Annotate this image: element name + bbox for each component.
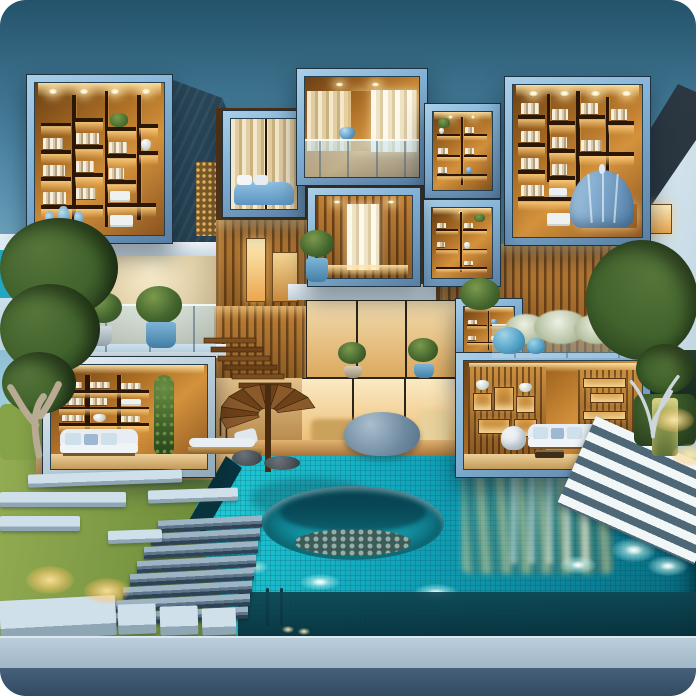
shelf-underglow bbox=[579, 119, 605, 129]
topiary-tree-canopy-right bbox=[586, 240, 696, 360]
box-shelves-upper-mid-interior bbox=[432, 111, 493, 191]
umbrella-seam bbox=[613, 174, 618, 223]
books-row bbox=[437, 223, 447, 229]
bed-pillow bbox=[254, 175, 269, 185]
sofa-pillow bbox=[65, 433, 81, 445]
tree-trunk-right bbox=[620, 360, 696, 460]
shelf-underglow bbox=[518, 174, 545, 184]
shelf-underglow bbox=[107, 131, 135, 141]
box-umbrella-shelves-interior bbox=[512, 84, 643, 238]
concrete-paver bbox=[108, 529, 162, 544]
glass-mullion bbox=[405, 301, 407, 377]
books-row bbox=[468, 320, 477, 325]
sofa-pillow bbox=[84, 434, 98, 446]
ceiling-spotlight bbox=[528, 90, 538, 98]
shelf-underglow bbox=[579, 156, 634, 166]
books-row bbox=[521, 103, 539, 115]
lit-window-a bbox=[246, 238, 266, 302]
bonsai-plant bbox=[300, 230, 334, 257]
books-row bbox=[437, 242, 445, 248]
foreground-dark-band bbox=[0, 668, 696, 696]
display-cube bbox=[473, 393, 493, 410]
box-shelves-upper-mid bbox=[424, 103, 501, 199]
folded-towels bbox=[110, 215, 133, 227]
shelf-underglow bbox=[463, 231, 487, 236]
ceiling-spotlight bbox=[590, 90, 600, 98]
railing-post bbox=[319, 141, 321, 177]
ceiling-spotlight bbox=[335, 82, 344, 87]
sofa-pillow bbox=[567, 427, 582, 439]
books-row bbox=[121, 383, 141, 390]
shelf-underglow bbox=[518, 147, 545, 157]
books-row bbox=[521, 158, 539, 170]
spa-pebble-ring bbox=[295, 529, 411, 556]
box-shelves-mid bbox=[423, 199, 501, 287]
ceiling-spotlight bbox=[448, 115, 453, 119]
ceiling-spotlight bbox=[333, 200, 341, 204]
vertical-garden-vine bbox=[154, 375, 174, 456]
white-vase bbox=[141, 139, 151, 151]
books-row bbox=[552, 137, 567, 149]
shelf-underglow bbox=[436, 250, 459, 255]
sofa-pillow bbox=[101, 433, 117, 445]
shelf-underglow bbox=[437, 176, 488, 181]
shelf-underglow bbox=[75, 149, 103, 159]
plant-pot bbox=[306, 258, 328, 282]
decor-stone bbox=[264, 456, 300, 470]
shelf-plant bbox=[438, 118, 450, 128]
umbrella-knob bbox=[599, 164, 604, 173]
ceiling-spotlight bbox=[559, 90, 569, 98]
books-row bbox=[76, 133, 99, 145]
shelf-underglow bbox=[549, 125, 575, 135]
box-balcony-top-interior bbox=[304, 76, 420, 178]
display-cube bbox=[494, 387, 514, 411]
shelf-divider bbox=[460, 212, 462, 272]
blue-dome-ornament bbox=[493, 327, 525, 354]
concrete-paver bbox=[0, 492, 126, 507]
shelf-underglow bbox=[139, 128, 157, 138]
shelf-underglow bbox=[41, 126, 71, 136]
books-row bbox=[43, 192, 66, 204]
shelf-underglow bbox=[608, 125, 634, 135]
shelf-underglow bbox=[464, 136, 488, 141]
shelf-underglow bbox=[75, 122, 103, 132]
box-balcony-top bbox=[296, 68, 428, 186]
bonsai-plant bbox=[338, 342, 366, 364]
box-shelves-mid-interior bbox=[431, 207, 493, 279]
umbrella-seam bbox=[587, 174, 592, 223]
shelf-underglow bbox=[464, 157, 488, 162]
shelf-underglow bbox=[467, 326, 487, 329]
shelf-underglow bbox=[518, 119, 545, 129]
shelf-underglow bbox=[549, 153, 575, 163]
books-row bbox=[468, 336, 476, 340]
woven-gold-panel bbox=[196, 162, 216, 236]
books-row bbox=[438, 167, 447, 174]
books-row bbox=[465, 148, 474, 155]
topiary-ball bbox=[136, 286, 182, 324]
pool-edge-light bbox=[298, 628, 310, 635]
books-row bbox=[43, 165, 65, 177]
books-row bbox=[121, 416, 140, 423]
shelf-plant bbox=[474, 214, 485, 222]
decor-stone bbox=[232, 450, 262, 466]
white-vase bbox=[93, 414, 105, 422]
plant-pot bbox=[344, 366, 362, 378]
shelf-underglow bbox=[518, 201, 575, 211]
underwater-light-glow bbox=[300, 574, 340, 590]
shelf-underglow bbox=[139, 155, 157, 165]
pool-edge-light bbox=[282, 626, 294, 633]
books-row bbox=[581, 140, 602, 152]
shelf-underglow bbox=[436, 231, 459, 236]
folded-towels bbox=[547, 213, 570, 227]
books-row bbox=[552, 164, 567, 176]
shelf-underglow bbox=[436, 269, 488, 274]
folded-towels bbox=[549, 188, 567, 197]
box-umbrella-shelves bbox=[504, 76, 651, 246]
shelf-plant bbox=[110, 113, 128, 127]
spa-island bbox=[262, 486, 444, 560]
shelf-underglow bbox=[75, 177, 103, 187]
concrete-paver bbox=[202, 607, 237, 635]
ceiling-spotlight bbox=[621, 90, 631, 98]
books-row bbox=[465, 127, 474, 134]
blue-vase bbox=[466, 167, 472, 175]
shelf-underglow bbox=[437, 157, 461, 162]
lawn-uplight-glow bbox=[84, 578, 130, 604]
beanbag-chair bbox=[344, 412, 420, 456]
books-row bbox=[76, 188, 95, 200]
railing-post bbox=[376, 141, 378, 177]
white-vase bbox=[519, 383, 531, 393]
books-row bbox=[90, 382, 110, 389]
books-row bbox=[464, 261, 472, 267]
books-row bbox=[552, 109, 569, 121]
lounge-chair bbox=[501, 426, 526, 450]
tree-trunk-left bbox=[6, 360, 66, 472]
shelf-underglow bbox=[437, 136, 461, 141]
books-row bbox=[43, 138, 64, 150]
underwater-light-core bbox=[625, 545, 643, 556]
concrete-paver bbox=[117, 603, 156, 634]
concrete-paver bbox=[160, 605, 199, 635]
box-bedroom bbox=[222, 110, 306, 218]
books-row bbox=[90, 398, 107, 405]
blue-dome-ornament bbox=[527, 338, 545, 354]
sofa bbox=[60, 429, 138, 458]
shelf-divider bbox=[547, 94, 551, 182]
display-cube bbox=[516, 396, 536, 413]
ceiling-spotlight bbox=[141, 88, 151, 96]
bed-pillow bbox=[237, 175, 252, 185]
shelf-underglow bbox=[107, 158, 135, 168]
lawn-uplight-glow bbox=[26, 566, 74, 594]
railing-post bbox=[404, 141, 406, 177]
box-shelves-topleft-interior bbox=[34, 82, 165, 236]
shelf-underglow bbox=[41, 181, 71, 191]
sofa-base bbox=[63, 453, 135, 456]
underwater-light-core bbox=[660, 562, 676, 571]
folded-towels bbox=[110, 191, 131, 202]
shelf-underglow bbox=[463, 250, 487, 255]
folded-towels bbox=[121, 399, 141, 405]
cove-light-glow bbox=[320, 265, 408, 276]
railing-post bbox=[347, 141, 349, 177]
underwater-light-glow bbox=[560, 556, 596, 574]
bonsai-plant bbox=[460, 278, 500, 310]
box-bedroom-interior bbox=[230, 118, 298, 210]
balcony-glass-railing bbox=[305, 139, 419, 177]
underwater-light-core bbox=[571, 561, 585, 569]
planter-pot bbox=[146, 322, 176, 348]
books-row bbox=[611, 109, 626, 121]
books-row bbox=[438, 148, 449, 155]
books-row bbox=[581, 103, 598, 115]
coffee-table bbox=[535, 450, 563, 459]
umbrella-seam bbox=[602, 174, 604, 223]
deck-walkway-band bbox=[0, 636, 696, 672]
underwater-light-core bbox=[312, 578, 328, 585]
railing-post bbox=[193, 306, 195, 352]
shelf-underglow bbox=[41, 154, 71, 164]
spa-water-dark bbox=[280, 493, 426, 531]
bed-platform bbox=[234, 182, 295, 205]
books-row bbox=[464, 223, 472, 229]
luxury-cubic-house-pool-photo bbox=[0, 0, 696, 696]
concrete-paver bbox=[0, 516, 80, 531]
plant-pot bbox=[414, 364, 434, 378]
white-vase bbox=[464, 242, 469, 249]
books-row bbox=[521, 185, 544, 197]
bonsai-plant bbox=[408, 338, 438, 362]
sheer-curtain bbox=[347, 204, 380, 270]
sofa-pillow bbox=[551, 428, 564, 439]
books-row bbox=[109, 142, 127, 154]
books-row bbox=[76, 161, 94, 173]
books-row bbox=[521, 131, 540, 143]
ceiling-spotlight bbox=[387, 200, 395, 204]
books-row bbox=[109, 168, 124, 180]
sofa-pillow bbox=[533, 427, 548, 439]
